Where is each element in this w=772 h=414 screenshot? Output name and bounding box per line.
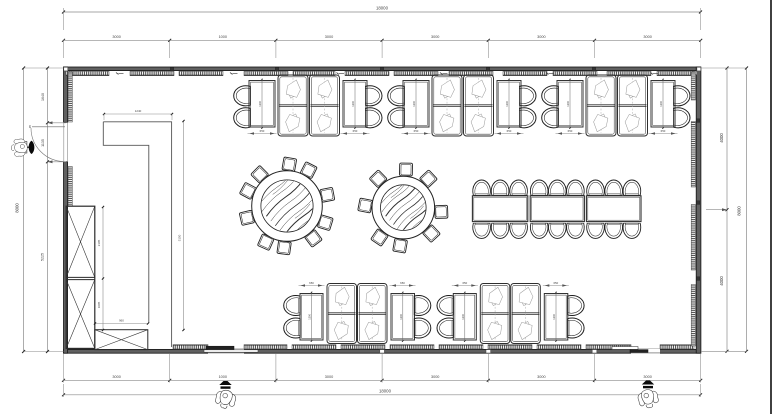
svg-text:1000: 1000 — [219, 35, 227, 39]
svg-text:95: 95 — [28, 125, 32, 129]
svg-text:3000: 3000 — [537, 375, 545, 379]
svg-text:1240: 1240 — [135, 109, 142, 113]
svg-text:1000: 1000 — [219, 375, 227, 379]
svg-text:1200: 1200 — [412, 100, 416, 106]
svg-text:4000: 4000 — [719, 133, 724, 143]
svg-text:960: 960 — [119, 319, 124, 323]
svg-text:650: 650 — [462, 281, 467, 285]
svg-text:3000: 3000 — [643, 35, 651, 39]
svg-text:650: 650 — [661, 129, 666, 133]
svg-text:1200: 1200 — [552, 313, 556, 319]
svg-text:8000: 8000 — [737, 206, 742, 216]
svg-text:1200: 1200 — [399, 313, 403, 319]
svg-text:18000: 18000 — [379, 388, 392, 393]
svg-text:650: 650 — [568, 129, 573, 133]
svg-text:1005: 1005 — [97, 301, 101, 308]
svg-text:1200: 1200 — [505, 100, 509, 106]
svg-text:3000: 3000 — [431, 375, 439, 379]
svg-text:650: 650 — [507, 129, 512, 133]
svg-text:3000: 3000 — [112, 375, 120, 379]
svg-text:3000: 3000 — [643, 375, 651, 379]
svg-text:5225: 5225 — [41, 253, 45, 261]
svg-text:18000: 18000 — [376, 6, 389, 11]
svg-text:5150: 5150 — [178, 234, 182, 241]
svg-text:1200: 1200 — [351, 100, 355, 106]
svg-text:1200: 1200 — [461, 313, 465, 319]
svg-text:650: 650 — [400, 281, 405, 285]
svg-text:1200: 1200 — [258, 100, 262, 106]
svg-text:1200: 1200 — [659, 100, 663, 106]
svg-text:650: 650 — [260, 129, 265, 133]
svg-text:3000: 3000 — [325, 375, 333, 379]
svg-text:1640: 1640 — [41, 93, 45, 101]
svg-text:1200: 1200 — [308, 313, 312, 319]
svg-text:650: 650 — [353, 129, 358, 133]
svg-text:2105: 2105 — [97, 239, 101, 246]
svg-text:4000: 4000 — [719, 276, 724, 286]
svg-text:1135: 1135 — [41, 139, 45, 147]
svg-text:1200: 1200 — [566, 100, 570, 106]
svg-text:3000: 3000 — [431, 35, 439, 39]
svg-text:3000: 3000 — [325, 35, 333, 39]
svg-text:3000: 3000 — [112, 35, 120, 39]
svg-text:650: 650 — [309, 281, 314, 285]
svg-text:650: 650 — [553, 281, 558, 285]
svg-text:650: 650 — [414, 129, 419, 133]
svg-text:8000: 8000 — [15, 203, 20, 213]
svg-text:3000: 3000 — [537, 35, 545, 39]
